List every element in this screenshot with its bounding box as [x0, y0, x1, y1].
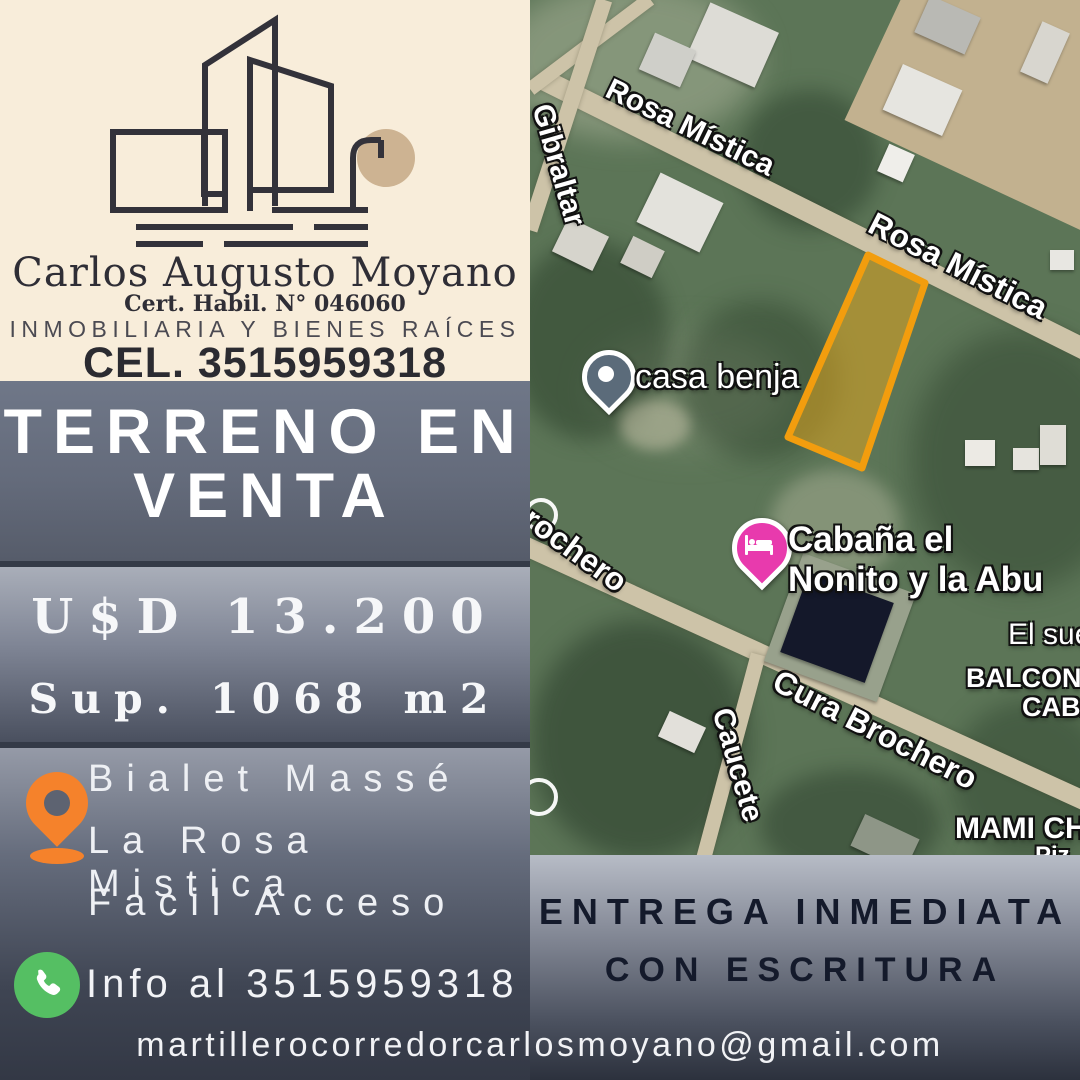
listing-title-block: TERRENO EN VENTA	[0, 381, 530, 561]
poi-label-casa-benja: casa benja	[635, 358, 799, 397]
agency-certification: Cert. Habil. N° 046060	[0, 291, 530, 317]
location-city: Bialet Massé	[88, 758, 528, 801]
listing-title-line2: VENTA	[0, 460, 530, 532]
place-label-piz: Piz	[1035, 842, 1070, 855]
agency-header: Carlos Augusto Moyano Cert. Habil. N° 04…	[0, 0, 530, 381]
surface-value: Sup. 1068 m2	[0, 675, 530, 723]
poi-label-cabana-line2: Nonito y la Abu	[788, 560, 1043, 600]
contact-info-line: Info al 3515959318	[86, 962, 530, 1007]
highlight-line1: ENTREGA INMEDIATA	[530, 891, 1080, 933]
location-access: Facil Acceso	[88, 882, 528, 925]
real-estate-flyer: Carlos Augusto Moyano Cert. Habil. N° 04…	[0, 0, 1080, 1080]
casa-benja-marker-dot	[598, 366, 614, 382]
place-label-balcon-mistico: BALCON MISTICO	[966, 663, 1080, 694]
contact-email: martillerocorredorcarlosmoyano@gmail.com	[0, 1026, 1080, 1065]
agency-name: Carlos Augusto Moyano	[0, 250, 530, 296]
location-pin-shadow	[30, 848, 84, 864]
poi-label-cabana-line1: Cabaña el	[788, 520, 953, 560]
buildings-logo	[100, 6, 430, 248]
phone-icon	[14, 952, 80, 1018]
place-label-mami-che: MAMI CHE	[955, 812, 1080, 846]
highlight-line2: CON ESCRITURA	[530, 951, 1080, 990]
logo-front-building	[250, 60, 331, 211]
parcel-highlight	[530, 0, 1080, 855]
bed-icon	[743, 533, 775, 557]
satellite-map: casa benja Cabaña el Nonito y la Abu Gib…	[530, 0, 1080, 855]
place-label-el-sue: El sue	[1008, 618, 1080, 652]
price-block: U$D 13.200 Sup. 1068 m2	[0, 567, 530, 742]
logo-back-building	[205, 20, 275, 206]
phone-handset-glyph	[28, 966, 66, 1004]
place-label-cabana: CABAÑA	[1022, 692, 1080, 723]
listing-title-line1: TERRENO EN	[0, 396, 530, 468]
price-value: U$D 13.200	[0, 589, 530, 645]
logo-small-building	[113, 132, 225, 210]
